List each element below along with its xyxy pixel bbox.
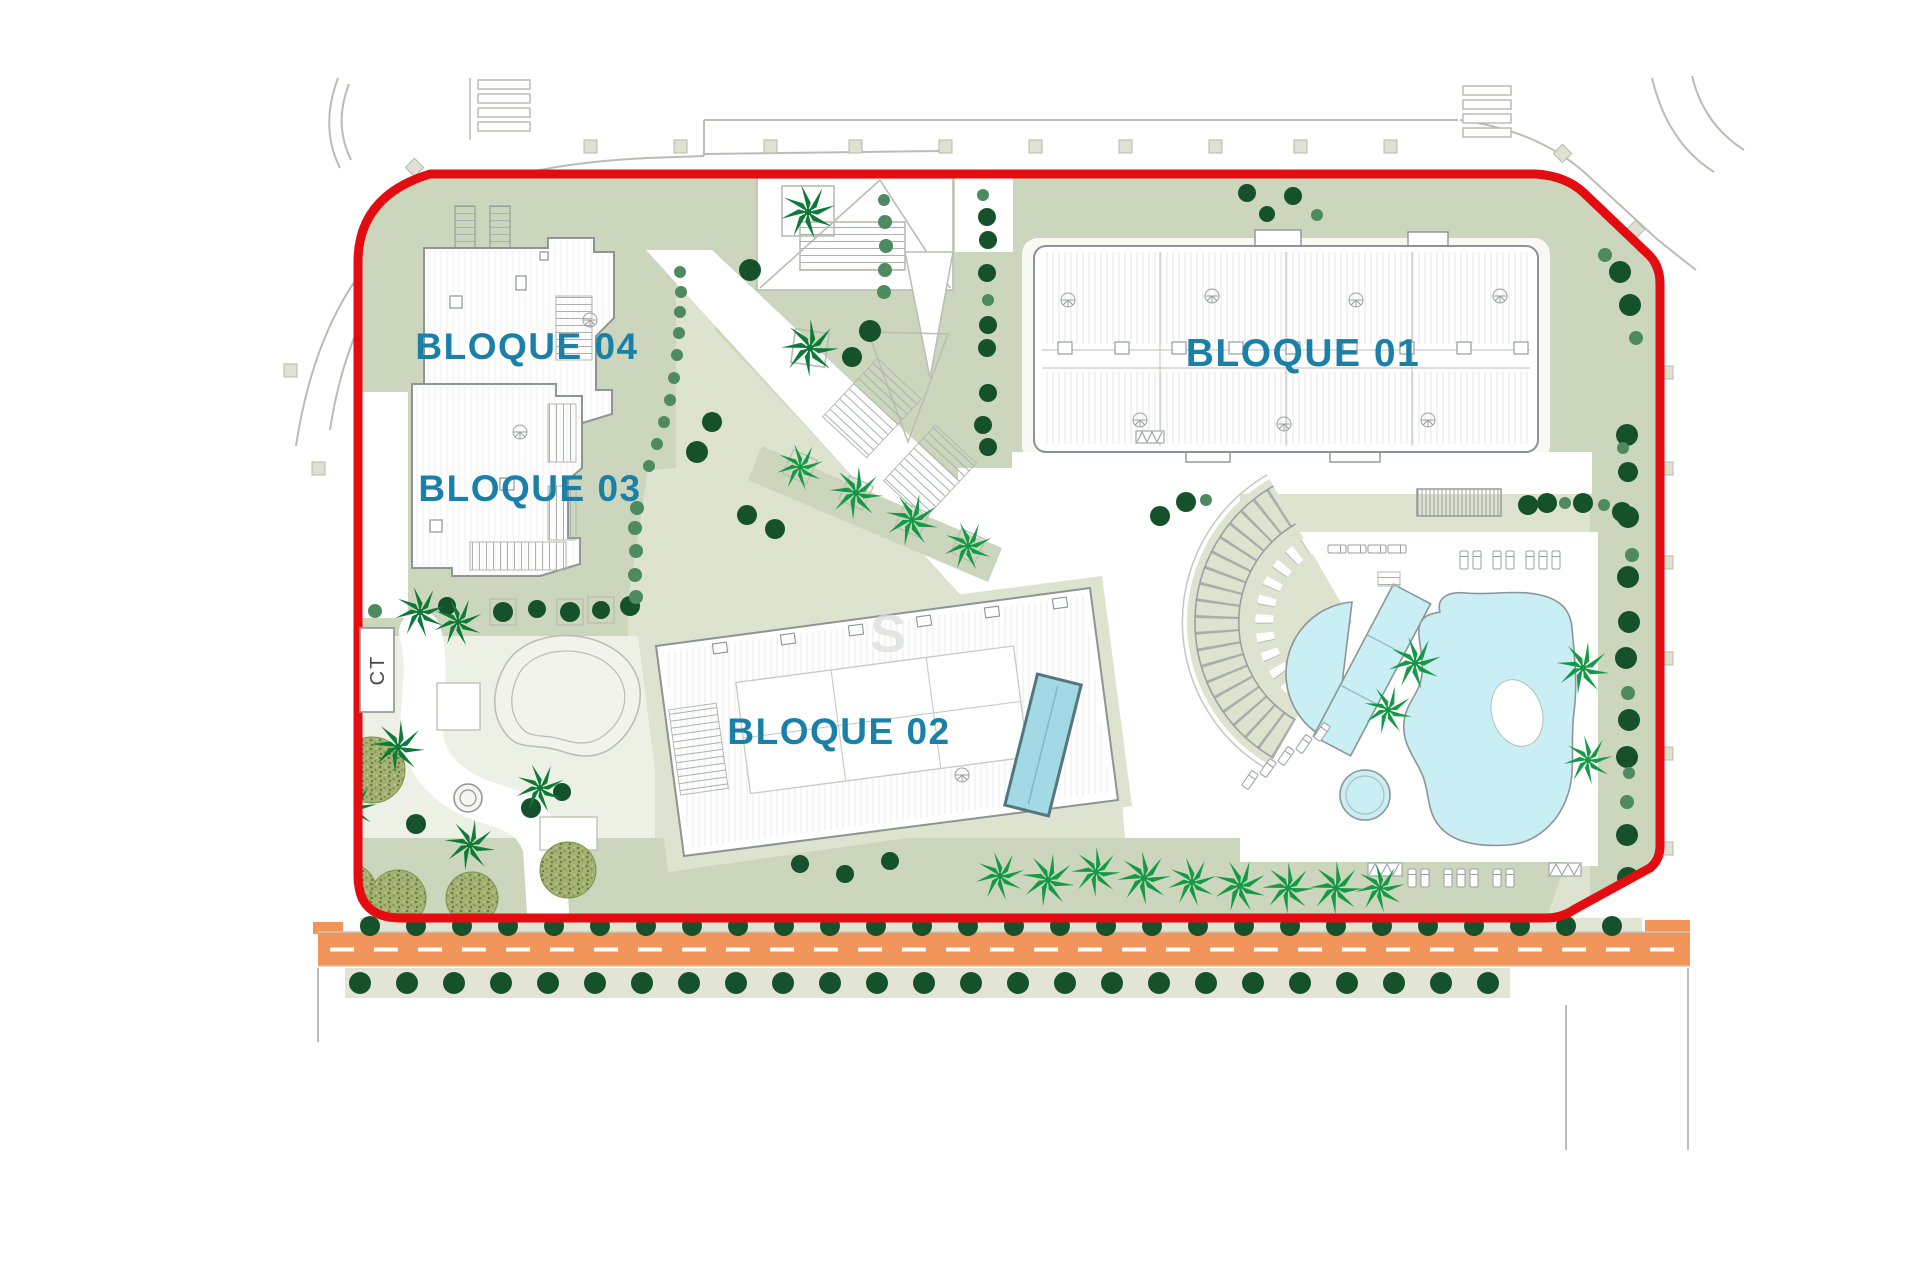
south-road (313, 916, 1690, 998)
b01-north-bump-1 (1255, 230, 1301, 246)
lagoon-pool (1404, 592, 1576, 845)
b04-stairs-north-2 (490, 206, 510, 248)
lap-pool-steps (1378, 572, 1400, 586)
street-crescent (329, 78, 351, 168)
label-bloque-02: BLOQUE 02 (727, 711, 950, 752)
transformer-station: CT (360, 628, 394, 712)
b04-stairs-north-1 (455, 206, 475, 248)
ct-label: CT (367, 655, 389, 686)
site-plan-page: S (0, 0, 1920, 1280)
street-edge-top-2 (704, 151, 940, 154)
garden-planter-box (437, 683, 480, 730)
street-arc-right-2 (1692, 76, 1744, 150)
label-bloque-01: BLOQUE 01 (1186, 332, 1421, 375)
playground-outer (495, 635, 641, 756)
b01-north-bump-2 (1408, 232, 1448, 246)
spa-pool (1340, 770, 1390, 820)
fountain-outer (454, 784, 482, 812)
street-arc-right-1 (1652, 78, 1714, 172)
crosswalk-top-right (1463, 86, 1511, 137)
pergola-small-1 (1368, 863, 1402, 876)
b03-stairs-south (470, 542, 566, 570)
pergola-small-2 (1549, 863, 1581, 876)
crosswalk-top-left (470, 78, 530, 140)
label-bloque-04: BLOQUE 04 (415, 326, 638, 367)
watermark: S (870, 604, 906, 664)
site-interior: S (324, 166, 1670, 928)
paved-path-west (362, 392, 408, 618)
pergola-small-3 (1136, 431, 1164, 443)
pergola-large (1417, 489, 1501, 516)
site-plan-drawing: S (0, 0, 1920, 1280)
label-bloque-03: BLOQUE 03 (418, 468, 641, 509)
b03-stairs-1 (548, 404, 576, 462)
